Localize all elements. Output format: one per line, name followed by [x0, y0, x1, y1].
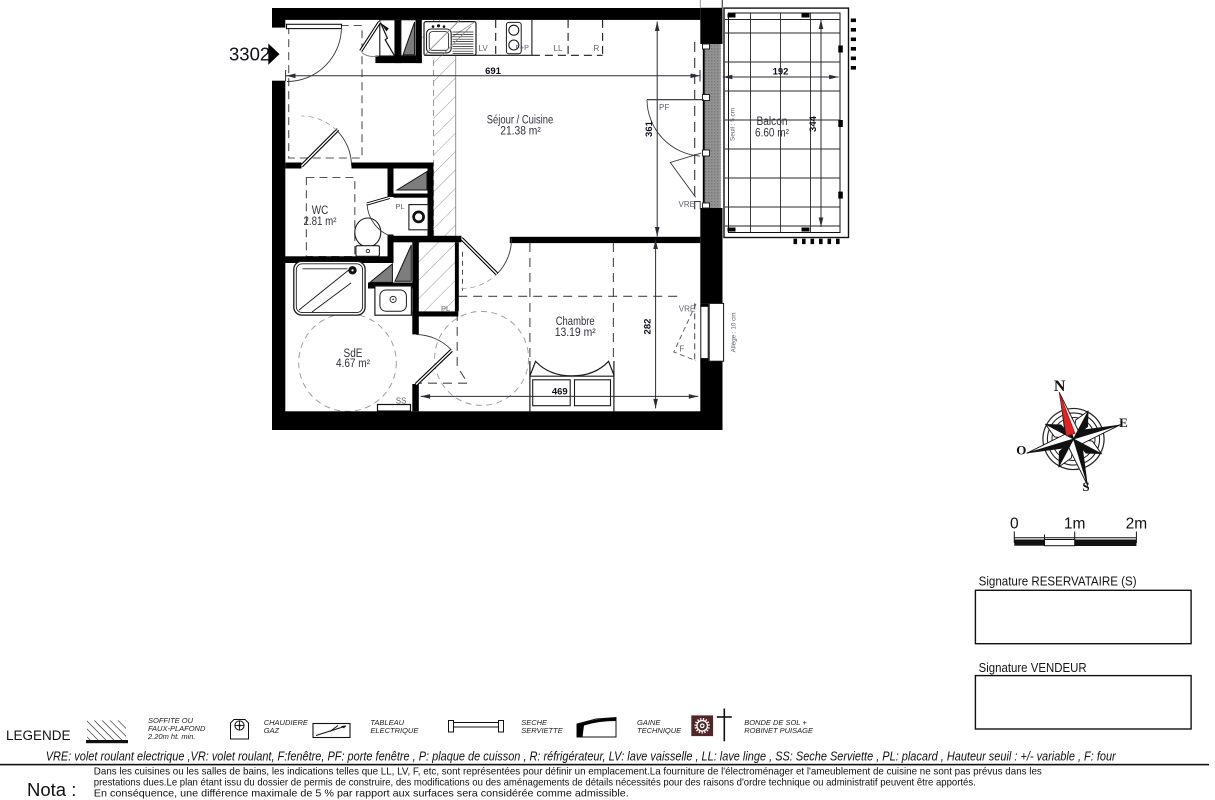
svg-text:O: O — [1016, 443, 1026, 458]
svg-text:Signature RESERVATAIRE (S): Signature RESERVATAIRE (S) — [979, 574, 1137, 589]
svg-text:VRE: volet roulant electrique: VRE: volet roulant electrique ,VR: volet… — [46, 750, 1117, 764]
svg-text:TECHNIQUE: TECHNIQUE — [637, 726, 682, 735]
svg-text:SS: SS — [396, 397, 407, 406]
svg-text:LL: LL — [554, 44, 563, 53]
svg-text:GAZ: GAZ — [264, 726, 280, 735]
svg-text:PL: PL — [441, 304, 450, 313]
svg-text:2.20m ht. min.: 2.20m ht. min. — [147, 732, 196, 741]
svg-text:13.19 m²: 13.19 m² — [555, 327, 596, 339]
svg-text:4.67 m²: 4.67 m² — [336, 358, 370, 370]
svg-text:E: E — [1119, 415, 1128, 430]
svg-text:LEGENDE: LEGENDE — [6, 728, 71, 743]
svg-text:F: F — [680, 345, 685, 354]
svg-text:344: 344 — [808, 115, 819, 132]
svg-text:LV: LV — [479, 44, 489, 53]
svg-text:PF: PF — [659, 103, 669, 112]
svg-text:21.38 m²: 21.38 m² — [500, 125, 541, 137]
svg-text:WC: WC — [312, 205, 329, 217]
svg-text:ELECTRIQUE: ELECTRIQUE — [370, 726, 419, 735]
svg-text:3302: 3302 — [229, 44, 270, 65]
svg-text:SERVIETTE: SERVIETTE — [521, 726, 564, 735]
svg-text:Nota :: Nota : — [27, 779, 76, 800]
svg-text:En conséquence, une différence: En conséquence, une différence maximale … — [94, 788, 629, 800]
svg-text:Allège : 10 cm: Allège : 10 cm — [731, 312, 738, 352]
svg-text:361: 361 — [644, 120, 655, 137]
svg-text:192: 192 — [773, 67, 789, 78]
svg-text:N: N — [1054, 378, 1066, 395]
svg-text:0: 0 — [1010, 516, 1019, 533]
svg-text:R: R — [594, 44, 600, 53]
svg-text:F+P: F+P — [516, 43, 530, 52]
svg-text:Balcon: Balcon — [757, 116, 788, 128]
svg-text:691: 691 — [485, 66, 502, 77]
svg-text:282: 282 — [643, 319, 654, 335]
svg-text:S: S — [1082, 479, 1089, 494]
svg-text:PL: PL — [396, 202, 405, 211]
svg-text:6.60 m²: 6.60 m² — [755, 128, 789, 140]
svg-text:2m: 2m — [1126, 516, 1148, 533]
svg-text:1m: 1m — [1064, 516, 1086, 533]
svg-text:VRE: VRE — [679, 200, 695, 209]
svg-text:Chambre: Chambre — [556, 316, 595, 328]
svg-text:ROBINET PUISAGE: ROBINET PUISAGE — [744, 726, 814, 735]
svg-text:2.81 m²: 2.81 m² — [304, 216, 337, 228]
svg-text:Signature VENDEUR: Signature VENDEUR — [979, 660, 1087, 675]
svg-text:469: 469 — [552, 386, 568, 397]
svg-text:Seuil : 5 cm: Seuil : 5 cm — [729, 108, 736, 141]
svg-text:VRE: VRE — [679, 304, 695, 313]
